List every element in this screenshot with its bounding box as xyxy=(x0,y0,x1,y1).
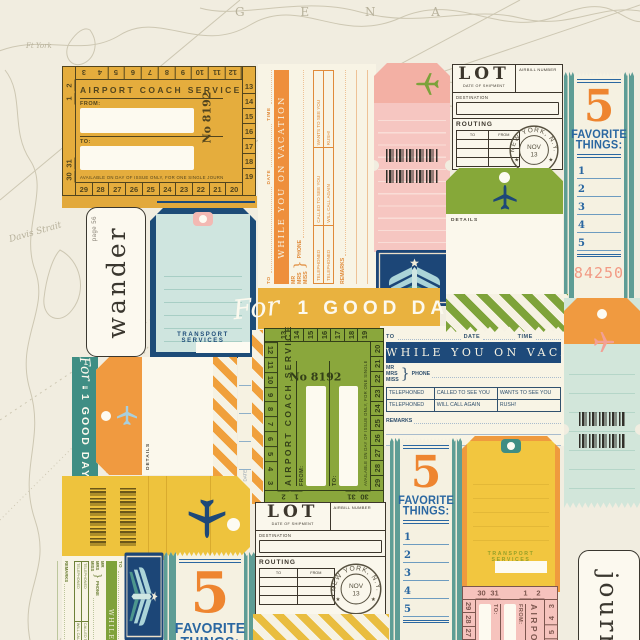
message-slip-vacation: TO DATE TIME WHILE YOU ON VACATION MR MR… xyxy=(380,326,567,446)
brace-glyph: } xyxy=(292,260,308,269)
airplane-icon xyxy=(188,494,226,538)
double-rule xyxy=(577,254,621,258)
ticket-numbers-bottom: 29282726252423222120 xyxy=(75,182,243,195)
barcode xyxy=(386,170,438,183)
routing-table: TOFROM xyxy=(259,568,335,605)
banner-1-good-day-teal: For 1 GOOD DAY xyxy=(72,357,98,479)
brace-glyph: } xyxy=(401,366,410,382)
big-number: 5 xyxy=(191,565,230,621)
washi-tape-orange xyxy=(252,330,263,504)
lot-title: LOT xyxy=(256,504,330,522)
coach-ticket-yellow: 3456789101112 21 3130 13141516171819 292… xyxy=(62,66,256,196)
star-icon: ★ xyxy=(548,158,553,164)
message-slip-green-rotated: TO DATE TIME WHILE YOU ON VACATION MR MR… xyxy=(62,556,128,640)
numbered-list: 1 2 3 4 5 xyxy=(403,527,449,617)
to-label: TO xyxy=(386,334,395,340)
miss-label: MISS xyxy=(303,271,309,284)
wander-word: wander xyxy=(102,225,131,338)
lot-title: LOT xyxy=(453,66,515,84)
banner-script-word: For xyxy=(232,293,281,325)
phone-label: PHONE xyxy=(297,240,303,258)
favorite-things-ticket: 5 FAVORITE THINGS: 1 2 3 4 5 xyxy=(390,438,462,640)
ticket-fine-print: AVAILABLE ON DAY OF ISSUE ONLY, FOR ONE … xyxy=(80,173,223,181)
coach-ticket-green-rotated: 3456789101112 21 3130 13141516171819 292… xyxy=(264,328,384,504)
ticket-side-band xyxy=(564,72,574,302)
from-field xyxy=(80,108,194,133)
to-field xyxy=(80,146,194,171)
washi-tape-yellow xyxy=(253,614,389,640)
barcode xyxy=(120,488,136,548)
ticket-fine-print: AVAILABLE ON DAY OF ISSUE ONLY, FOR ONE … xyxy=(361,361,369,486)
ticket-numbers-top: 3456789101112 xyxy=(544,599,557,640)
time-label: TIME xyxy=(518,334,533,340)
grommet-hole xyxy=(101,411,111,421)
ticket-side-band xyxy=(624,72,634,302)
airplane-icon xyxy=(416,71,442,97)
tag-field xyxy=(196,342,250,353)
message-slip-orange-rotated: TO DATE TIME WHILE YOU ON VACATION MR MR… xyxy=(258,64,376,290)
slip-title: WHILE YOU ON VACATION xyxy=(386,342,561,363)
banner-text: 1 GOOD DAY xyxy=(297,298,465,320)
barcode xyxy=(90,488,106,548)
numbered-list: 1 2 3 4 5 xyxy=(577,161,621,251)
transport-tag-teal: TRANSPORT SERVICES xyxy=(150,208,256,358)
map-strait-label: Davis Strait xyxy=(7,220,63,245)
ticket-title: AIRPORT COACH SERVICE xyxy=(525,604,543,640)
airplane-icon xyxy=(592,330,614,354)
wander-label: wander page 56 xyxy=(86,207,146,357)
grommet-hole xyxy=(507,442,515,450)
favorite-things-ticket: 5 FAVORITE THINGS: 1 2 3 4 5 84250 xyxy=(564,72,634,302)
destination-label: DESTINATION xyxy=(456,95,488,100)
barcode xyxy=(386,149,438,162)
postmark-month: NOV xyxy=(527,144,541,151)
postmark-stamp: NEW YORK, N.Y. NOV 13 ★ ★ xyxy=(328,561,384,617)
date-label: DATE xyxy=(464,334,481,340)
details-label: DETAILS xyxy=(451,218,478,223)
journey-word: journey xyxy=(595,572,624,640)
star-icon: ★ xyxy=(335,596,340,603)
luggage-tag-pink xyxy=(374,63,450,252)
detail-tag-orange-rotated: DETAILS xyxy=(96,357,216,475)
slip-checkbox-table: TELEPHONEDCALLED TO SEE YOUWANTS TO SEE … xyxy=(386,387,561,412)
lot-shipping-label: LOT DATE OF SHIPMENT AIRBILL NUMBER DEST… xyxy=(452,64,563,170)
date-of-shipment-label: DATE OF SHIPMENT xyxy=(453,84,515,88)
journey-label: journey page xyxy=(578,550,640,640)
airbill-number-label: AIRBILL NUMBER xyxy=(516,65,559,92)
airline-wings-emblem-rotated xyxy=(124,553,163,640)
baggage-tag-yellow-sideways xyxy=(62,476,250,560)
ticket-code: 84250 xyxy=(574,264,624,282)
remarks-label: REMARKS xyxy=(340,258,346,284)
time-label: TIME xyxy=(267,107,272,120)
slip-checkbox-table: TELEPHONEDCALLED TO SEE YOUWANTS TO SEE … xyxy=(313,70,334,284)
ticket-number: No 8192 xyxy=(201,92,214,144)
star-icon: ★ xyxy=(371,596,376,603)
tag-ruled-lines xyxy=(569,356,635,502)
luggage-tag-mint xyxy=(564,298,640,508)
ticket-number: No 8192 xyxy=(290,370,342,383)
page-number: page 56 xyxy=(92,216,98,241)
favorite-things-ticket: 5 FAVORITE THINGS: xyxy=(164,552,256,640)
star-icon: ★ xyxy=(514,158,519,164)
grommet-hole xyxy=(597,309,607,319)
ticket-fine-print: AVAILABLE ON DAY OF ISSUE ONLY, FOR ONE … xyxy=(473,604,476,640)
washi-tape-orange xyxy=(213,357,237,477)
banner-script-word: For xyxy=(77,356,93,381)
ticket-numbers-right: 13141516171819 xyxy=(242,79,255,183)
map-letters: G E N A xyxy=(235,5,466,19)
details-label: DETAILS xyxy=(146,443,151,470)
navy-rule xyxy=(157,201,255,203)
to-label: TO xyxy=(267,276,272,284)
airplane-icon xyxy=(115,406,139,426)
banner-marks xyxy=(83,386,88,389)
destination-field xyxy=(456,102,559,115)
date-label: DATE xyxy=(267,170,272,185)
banner-text: 1 GOOD DAY xyxy=(79,394,91,479)
grommet-hole xyxy=(499,172,510,183)
barcode xyxy=(579,434,625,448)
big-number: 5 xyxy=(411,451,442,495)
barcode xyxy=(579,412,625,426)
scrapbook-paper: G E N A Davis Strait Ft York 34567891011… xyxy=(0,0,640,640)
airplane-icon xyxy=(493,185,517,213)
grommet-hole xyxy=(227,518,240,531)
detail-tag-green: DETAILS xyxy=(446,168,563,304)
transport-tag-yellow: TRANSPORT SERVICES xyxy=(462,436,560,592)
double-rule xyxy=(577,154,621,158)
banner-for-1-good-day: For 1 GOOD DAY xyxy=(258,288,440,329)
slip-title: WHILE YOU ON VACATION xyxy=(106,561,117,640)
coach-ticket-pink-rotated: 3456789101112 21 3130 13141516171819 292… xyxy=(462,586,558,640)
wings-icon xyxy=(125,553,164,640)
date-label: DATE xyxy=(243,470,248,482)
ticket-numbers-bottom: 29282726252423222120 xyxy=(370,341,383,491)
tag-notch xyxy=(635,424,640,435)
slip-title: WHILE YOU ON VACATION xyxy=(274,70,289,284)
map-fort-label: Ft York xyxy=(25,42,52,50)
big-number: 5 xyxy=(584,85,615,129)
grommet-hole xyxy=(199,215,207,223)
phone-label: PHONE xyxy=(412,371,430,377)
svg-text:NOV: NOV xyxy=(349,583,364,590)
tag-field xyxy=(495,561,547,573)
remarks-label: REMARKS xyxy=(386,418,412,424)
postmark-day: 13 xyxy=(530,151,538,158)
svg-text:13: 13 xyxy=(352,591,360,598)
lot-shipping-label: LOT DATE OF SHIPMENT AIRBILL NUMBER DEST… xyxy=(255,502,386,616)
tag-ruled-lines xyxy=(473,471,549,541)
washi-tape-green xyxy=(446,294,568,332)
